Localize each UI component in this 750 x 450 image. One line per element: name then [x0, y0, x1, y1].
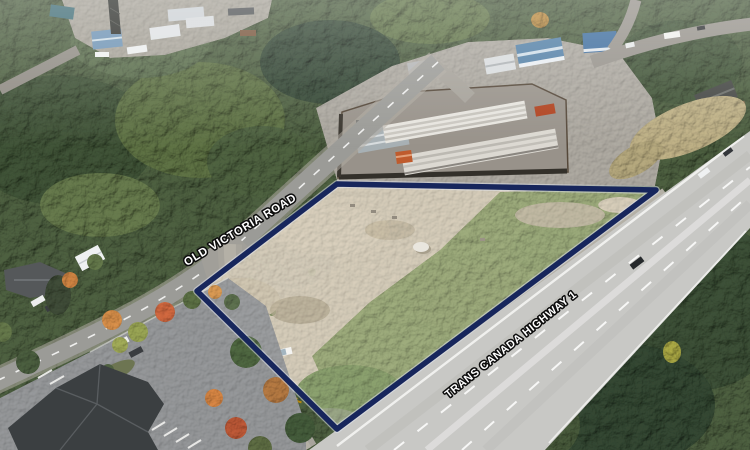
aerial-photo: OLD VICTORIA ROAD TRANS CANADA HIGHWAY 1	[0, 0, 750, 450]
orange-hut	[395, 150, 413, 164]
aerial-photo-canvas: OLD VICTORIA ROAD TRANS CANADA HIGHWAY 1	[0, 0, 750, 450]
haze-overlay	[0, 0, 750, 150]
